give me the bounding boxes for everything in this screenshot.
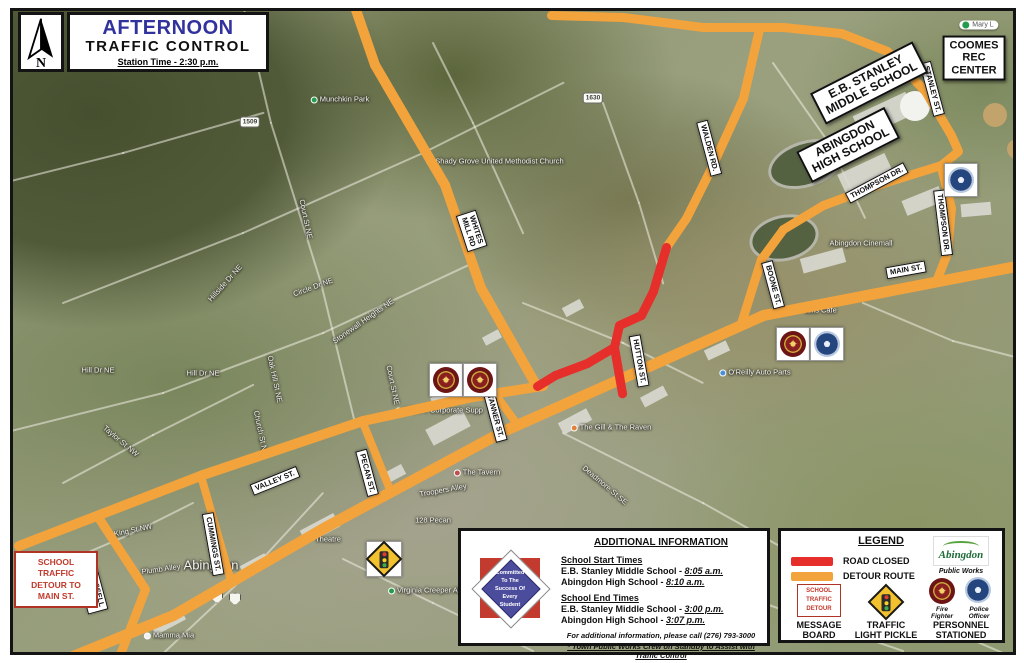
- minor-road-line: [162, 332, 325, 395]
- police-officer-badge-icon: [965, 577, 991, 603]
- map-place-label: The Gill & The Raven: [571, 423, 652, 432]
- map-place-label: Hill Dr NE: [187, 369, 220, 378]
- street-label: BOONE ST.: [761, 260, 785, 310]
- minor-road-line: [422, 82, 565, 155]
- phone-note: For additional information, please call …: [561, 631, 761, 640]
- school-name: E.B. Stanley Middle School -: [561, 604, 685, 614]
- info-title: ADDITIONAL INFORMATION: [561, 537, 761, 548]
- map-place-label: Mamma Mia: [144, 631, 194, 640]
- street-label: VALLEY ST.: [250, 466, 301, 496]
- minor-road-line: [952, 340, 1016, 360]
- public-works-brand: Abingdon: [939, 550, 984, 561]
- map-place-chip: Mary L: [959, 21, 998, 30]
- building-footprint: [562, 299, 584, 317]
- minor-road-line: [432, 42, 475, 125]
- us-route-shield-icon: [229, 593, 241, 606]
- message-board-sign: SCHOOL TRAFFIC DETOUR: [797, 584, 841, 617]
- minor-road-line: [242, 152, 425, 235]
- additional-information-box: Committed To The Success Of Every Studen…: [458, 528, 770, 646]
- page-title: AFTERNOON: [70, 18, 266, 39]
- fire-fighter-badge-icon: [776, 327, 810, 361]
- map-place-label: The Tavern: [454, 468, 500, 477]
- minor-road-line: [472, 122, 525, 235]
- map-feature-circle: [983, 103, 1007, 127]
- personnel-stationed-label: PERSONNEL STATIONED: [921, 620, 1001, 641]
- road-closed-label: ROAD CLOSED: [843, 556, 910, 566]
- police-officer-label: Police Officer: [961, 606, 997, 620]
- minor-road-line: [62, 434, 155, 485]
- map-feature-circle: [1007, 139, 1016, 159]
- map-place-label: Court St NE: [384, 364, 401, 405]
- start-time-row: E.B. Stanley Middle School - 8:05 a.m.: [561, 566, 761, 576]
- traffic-light-pickle-icon: [366, 541, 402, 577]
- school-name: Abingdon High School -: [561, 577, 666, 587]
- street-label: MAIN ST.: [885, 260, 927, 279]
- fire-fighter-badge-icon: [929, 578, 955, 604]
- school-name: E.B. Stanley Middle School -: [561, 566, 685, 576]
- fire-fighter-label: Fire Fighter: [923, 606, 961, 620]
- end-time-value: 3:00 p.m.: [685, 604, 724, 614]
- info-text-column: ADDITIONAL INFORMATION School Start Time…: [561, 533, 761, 660]
- map-place-label: King St NW: [113, 522, 153, 539]
- map-place-label: Munchkin Park: [311, 95, 370, 104]
- start-time-value: 8:05 a.m.: [685, 566, 724, 576]
- standby-note: * Town Public Works Crew on Standby to A…: [561, 642, 761, 660]
- building-footprint: [960, 202, 991, 218]
- map-place-label: 128 Pecan: [415, 516, 451, 525]
- minor-road-line: [10, 152, 124, 184]
- minor-road-line: [320, 282, 356, 424]
- building-footprint: [425, 410, 471, 446]
- title-block: N AFTERNOON TRAFFIC CONTROL Station Time…: [18, 12, 269, 72]
- legend-box: LEGEND ROAD CLOSED DETOUR ROUTE Abingdon…: [778, 528, 1005, 643]
- map-place-label: Circle Dr NE: [292, 276, 334, 299]
- route-shield: 1509: [240, 116, 260, 127]
- public-works-label: Public Works: [927, 568, 995, 575]
- map-place-label: Plumb Alley: [141, 562, 181, 576]
- page-subtitle: TRAFFIC CONTROL: [70, 39, 266, 56]
- road-closed-swatch: [791, 557, 833, 566]
- north-arrow-box: N: [18, 12, 64, 72]
- end-times-header: School End Times: [561, 593, 761, 603]
- detour-route-line: [546, 10, 627, 21]
- fire-fighter-badge-icon: [429, 363, 463, 397]
- detour-route-line: [699, 23, 788, 32]
- building-footprint: [640, 386, 668, 408]
- school-district-logo: Committed To The Success Of Every Studen…: [473, 549, 547, 627]
- map-place-label: Troopers Alley: [419, 481, 468, 498]
- north-arrow-icon: N: [22, 16, 60, 68]
- detour-route-line: [316, 424, 511, 536]
- police-officer-badge-icon: [810, 327, 844, 361]
- map-place-label: O'Reilly Auto Parts: [719, 368, 790, 377]
- detour-route-swatch: [791, 572, 833, 581]
- building-footprint: [482, 329, 502, 345]
- map-place-label: Abingdon Cinemall: [830, 239, 893, 248]
- pickle-label: TRAFFIC LIGHT PICKLE: [839, 620, 933, 641]
- detour-route-label: DETOUR ROUTE: [843, 571, 915, 581]
- station-time: Station Time - 2:30 p.m.: [70, 57, 266, 67]
- end-time-row: Abingdon High School - 3:07 p.m.: [561, 615, 761, 625]
- detour-route-line: [618, 12, 708, 32]
- detour-route-line: [778, 22, 846, 38]
- logo-motto: Committed To The Success Of Every Studen…: [473, 570, 547, 610]
- place-name-box: COOMES REC CENTER: [943, 36, 1006, 81]
- school-traffic-detour-sign: SCHOOL TRAFFIC DETOUR TO MAIN ST.: [14, 551, 98, 608]
- minor-road-line: [862, 302, 955, 343]
- map-place-label: Virginia Creeper Ab: [388, 586, 462, 595]
- end-time-value: 3:07 p.m.: [666, 615, 705, 625]
- road-closed-line: [609, 342, 627, 398]
- police-officer-badge-icon: [944, 163, 978, 197]
- minor-road-line: [10, 392, 164, 434]
- public-works-logo: Abingdon: [933, 536, 989, 566]
- title-box: AFTERNOON TRAFFIC CONTROL Station Time -…: [67, 12, 269, 72]
- map-place-label: Stonewall Heights NE: [331, 297, 396, 346]
- map-place-label: Taylor St NW: [101, 423, 140, 458]
- map-place-label: Hill Dr NE: [82, 366, 115, 375]
- map-place-label: Hillside Dr NE: [206, 263, 244, 304]
- school-name: Abingdon High School -: [561, 615, 666, 625]
- minor-road-line: [602, 102, 641, 205]
- fire-fighter-badge-icon: [463, 363, 497, 397]
- map-place-label: Shady Grove United Methodist Church: [426, 157, 563, 166]
- traffic-light-pickle-icon: [869, 585, 903, 619]
- end-time-row: E.B. Stanley Middle School - 3:00 p.m.: [561, 604, 761, 614]
- start-time-value: 8:10 a.m.: [666, 577, 705, 587]
- start-times-header: School Start Times: [561, 555, 761, 565]
- route-shield: 1630: [583, 92, 603, 103]
- minor-road-line: [270, 122, 323, 285]
- start-time-row: Abingdon High School - 8:10 a.m.: [561, 577, 761, 587]
- map-place-label: Deadmore St SE: [581, 463, 630, 506]
- detour-route-line: [738, 24, 765, 104]
- svg-text:N: N: [36, 56, 46, 68]
- minor-road-line: [322, 262, 475, 335]
- map-place-label: Oak Hill St NE: [266, 355, 285, 404]
